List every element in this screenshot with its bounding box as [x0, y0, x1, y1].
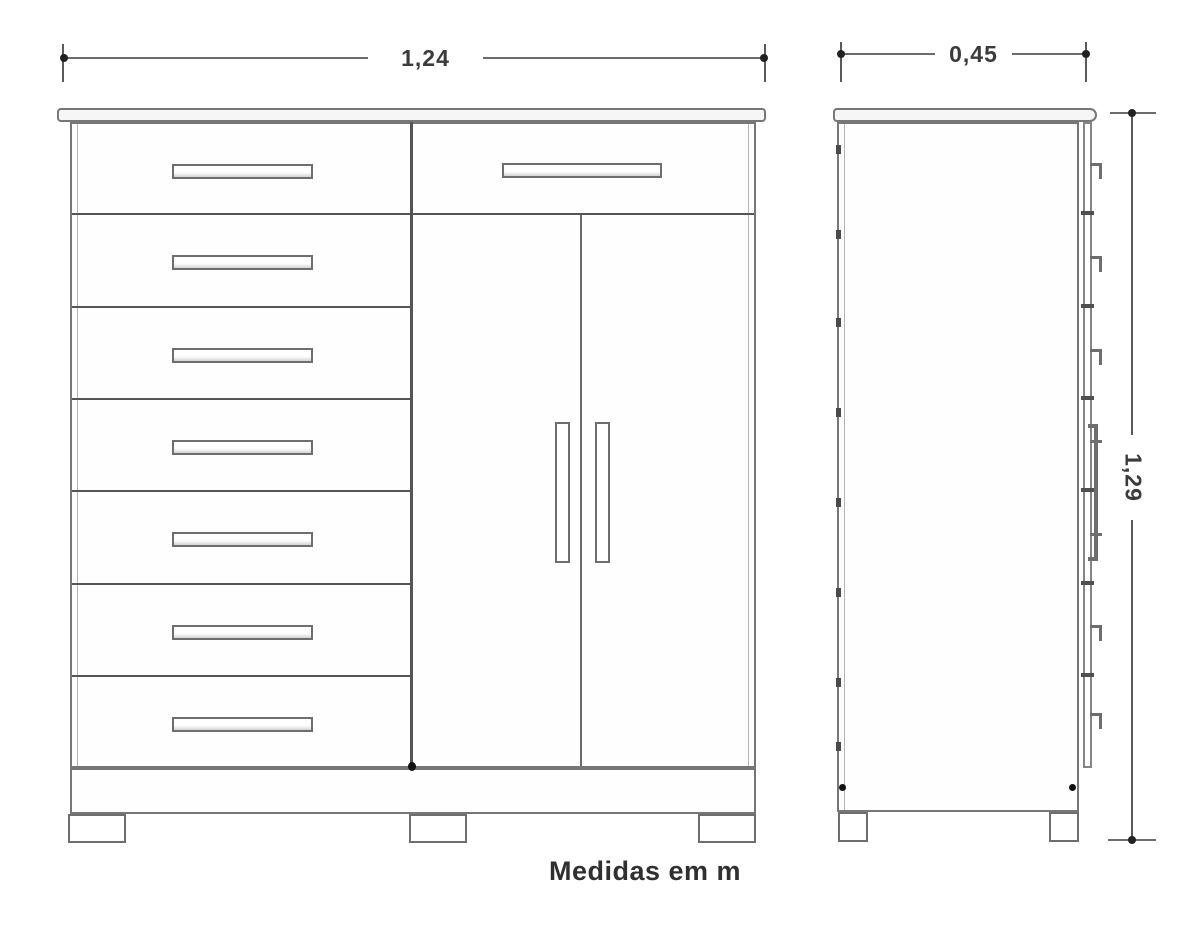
side-door-handle-mount-top	[1088, 424, 1096, 428]
front-foot-right	[698, 814, 756, 843]
right-door-handle	[595, 422, 610, 563]
side-cam-mark-8	[836, 742, 841, 751]
side-handle-profile-6-bar	[1099, 628, 1102, 641]
side-door-handle-bar	[1094, 424, 1098, 561]
front-width-dim-line-left	[63, 57, 368, 59]
drawer-handle-7	[172, 717, 313, 732]
drawer-handle-4	[172, 440, 313, 455]
front-top-board	[57, 108, 766, 122]
side-strip-joint-6	[1081, 673, 1094, 677]
side-left-inner-edge	[844, 124, 845, 810]
side-body	[837, 122, 1079, 812]
side-handle-profile-7-bar	[1099, 716, 1102, 729]
side-strip-joint-1	[1081, 211, 1094, 215]
front-divider-row6	[72, 675, 410, 677]
front-width-dim-label: 1,24	[368, 45, 483, 72]
front-width-dim-tick-right	[764, 44, 766, 82]
side-cam-mark-6	[836, 588, 841, 597]
front-foot-center	[409, 814, 467, 843]
side-cam-mark-2	[836, 230, 841, 239]
side-top-board	[833, 108, 1097, 122]
front-left-inner-edge	[77, 124, 78, 766]
side-depth-dim-tick-left	[840, 42, 842, 82]
side-cam-mark-5	[836, 498, 841, 507]
front-divider-row2	[72, 306, 410, 308]
height-dim-label: 1,29	[1120, 438, 1147, 518]
side-depth-dim-arrow-right	[1082, 50, 1090, 58]
drawer-handle-6	[172, 625, 313, 640]
side-handle-profile-2-bar	[1099, 259, 1102, 272]
side-cam-mark-3	[836, 318, 841, 327]
drawer-handle-2	[172, 255, 313, 270]
side-foot-front	[1049, 812, 1079, 842]
front-divider-row3	[72, 398, 410, 400]
side-depth-dim-line-right	[1012, 53, 1086, 55]
side-strip-joint-4	[1081, 488, 1094, 492]
side-depth-dim-tick-right	[1085, 42, 1087, 82]
front-door-gap	[580, 215, 582, 766]
height-dim-arrow-top	[1128, 109, 1136, 117]
front-plinth	[70, 768, 756, 814]
height-dim-arrow-bottom	[1128, 836, 1136, 844]
front-width-dim-arrow-left	[60, 54, 68, 62]
side-cam-mark-4	[836, 408, 841, 417]
side-foot-back	[838, 812, 868, 842]
front-width-dim-arrow-right	[760, 54, 768, 62]
side-cam-mark-7	[836, 678, 841, 687]
side-strip-joint-5	[1081, 581, 1094, 585]
left-door-handle	[555, 422, 570, 563]
front-divider-row1	[72, 213, 754, 215]
front-divider-row4	[72, 490, 410, 492]
front-assembly-mark	[408, 762, 416, 771]
front-width-dim-line-right	[483, 57, 765, 59]
drawer-handle-1	[172, 164, 313, 179]
furniture-dimension-diagram: 1,24 0,45	[0, 0, 1200, 928]
height-dim-line-top	[1131, 113, 1133, 435]
side-assembly-mark-back	[839, 784, 846, 791]
drawer-handle-3	[172, 348, 313, 363]
side-handle-profile-1-bar	[1099, 166, 1102, 179]
front-divider-row5	[72, 583, 410, 585]
side-cam-mark-1	[836, 145, 841, 154]
side-depth-dim-label: 0,45	[935, 41, 1012, 68]
front-right-inner-edge	[748, 124, 749, 766]
side-strip-joint-2	[1081, 304, 1094, 308]
side-door-handle-mount-bottom	[1088, 557, 1096, 561]
side-front-strip	[1083, 122, 1092, 768]
front-center-divider	[410, 122, 413, 768]
side-handle-profile-3-bar	[1099, 352, 1102, 365]
units-caption: Medidas em m	[495, 856, 795, 887]
side-depth-dim-arrow-left	[837, 50, 845, 58]
top-right-drawer-handle	[502, 163, 662, 178]
front-width-dim-tick-left	[62, 44, 64, 82]
drawer-handle-5	[172, 532, 313, 547]
height-dim-line-bottom	[1131, 520, 1133, 840]
side-depth-dim-line-left	[841, 53, 935, 55]
front-foot-left	[68, 814, 126, 843]
side-strip-joint-3	[1081, 396, 1094, 400]
side-assembly-mark-front	[1069, 784, 1076, 791]
